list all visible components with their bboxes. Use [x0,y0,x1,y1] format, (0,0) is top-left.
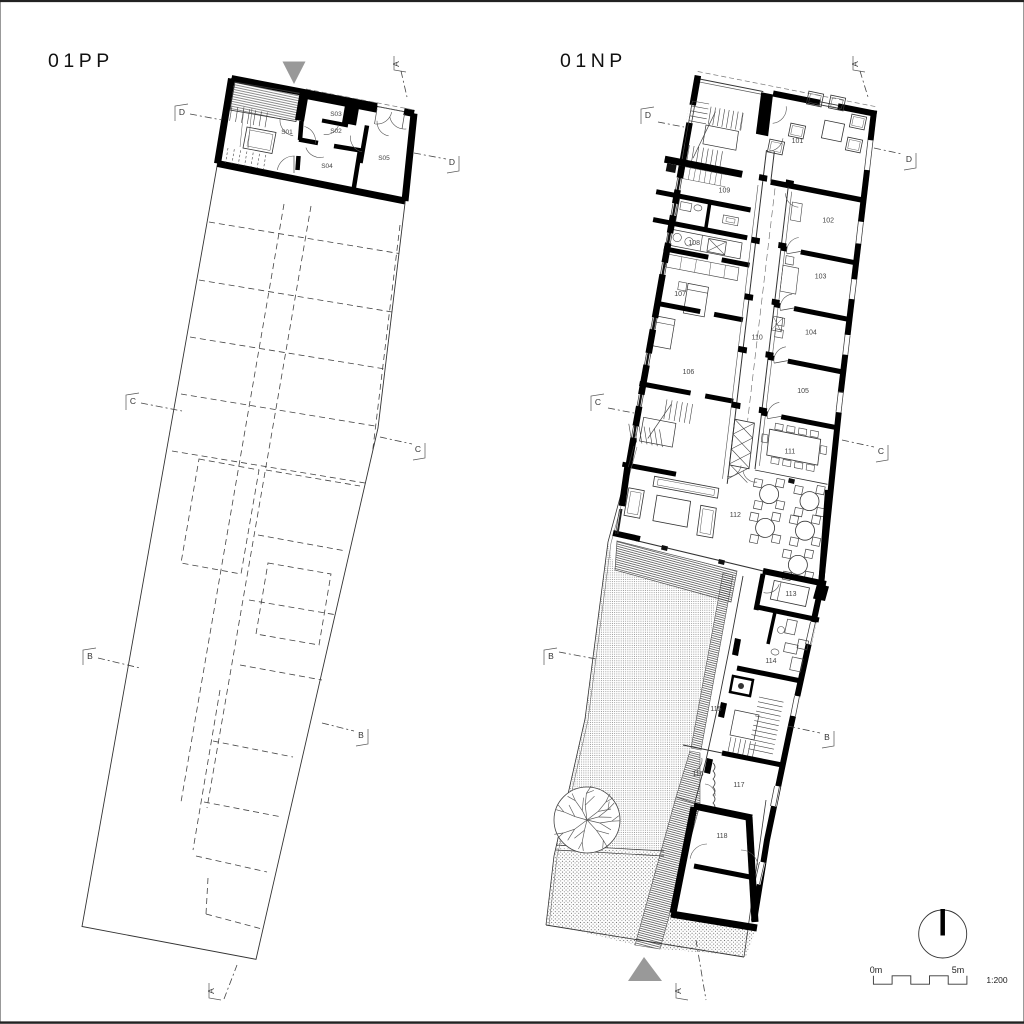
svg-text:111: 111 [785,449,796,456]
svg-text:5m: 5m [952,965,965,975]
svg-text:B: B [548,651,554,661]
svg-text:110: 110 [752,334,763,341]
svg-text:S03: S03 [330,111,342,118]
svg-text:C: C [595,397,601,407]
svg-text:01NP: 01NP [560,50,627,72]
svg-text:112: 112 [730,512,741,519]
svg-text:105: 105 [797,388,809,395]
svg-text:D: D [906,154,912,164]
svg-text:B: B [358,730,364,740]
svg-text:114: 114 [765,658,776,665]
svg-text:D: D [179,107,185,117]
svg-text:A: A [391,61,401,67]
svg-text:0m: 0m [870,965,883,975]
svg-text:C: C [130,396,136,406]
svg-text:104: 104 [805,330,817,337]
svg-text:B: B [824,732,830,742]
svg-text:108: 108 [688,240,700,247]
svg-text:D: D [645,110,651,120]
svg-text:106: 106 [683,369,695,376]
svg-text:S02: S02 [330,128,342,135]
svg-text:107: 107 [674,291,686,298]
svg-text:01PP: 01PP [48,50,114,72]
svg-text:S04: S04 [321,163,333,170]
svg-text:103: 103 [815,274,827,281]
svg-text:117: 117 [733,782,744,789]
svg-text:S05: S05 [378,155,390,162]
svg-text:109: 109 [719,188,731,195]
svg-text:116: 116 [692,771,703,778]
svg-text:D: D [449,157,455,167]
svg-text:C: C [878,446,884,456]
svg-text:1:200: 1:200 [986,975,1008,985]
svg-text:102: 102 [822,217,834,224]
svg-text:S01: S01 [281,129,293,136]
svg-text:101: 101 [792,138,804,145]
svg-text:A: A [673,988,683,994]
svg-text:B: B [87,651,93,661]
svg-text:115: 115 [710,706,721,713]
svg-text:A: A [850,61,860,67]
svg-text:113: 113 [785,591,796,598]
svg-text:A: A [206,988,216,994]
svg-text:C: C [415,444,421,454]
svg-text:118: 118 [716,833,727,840]
